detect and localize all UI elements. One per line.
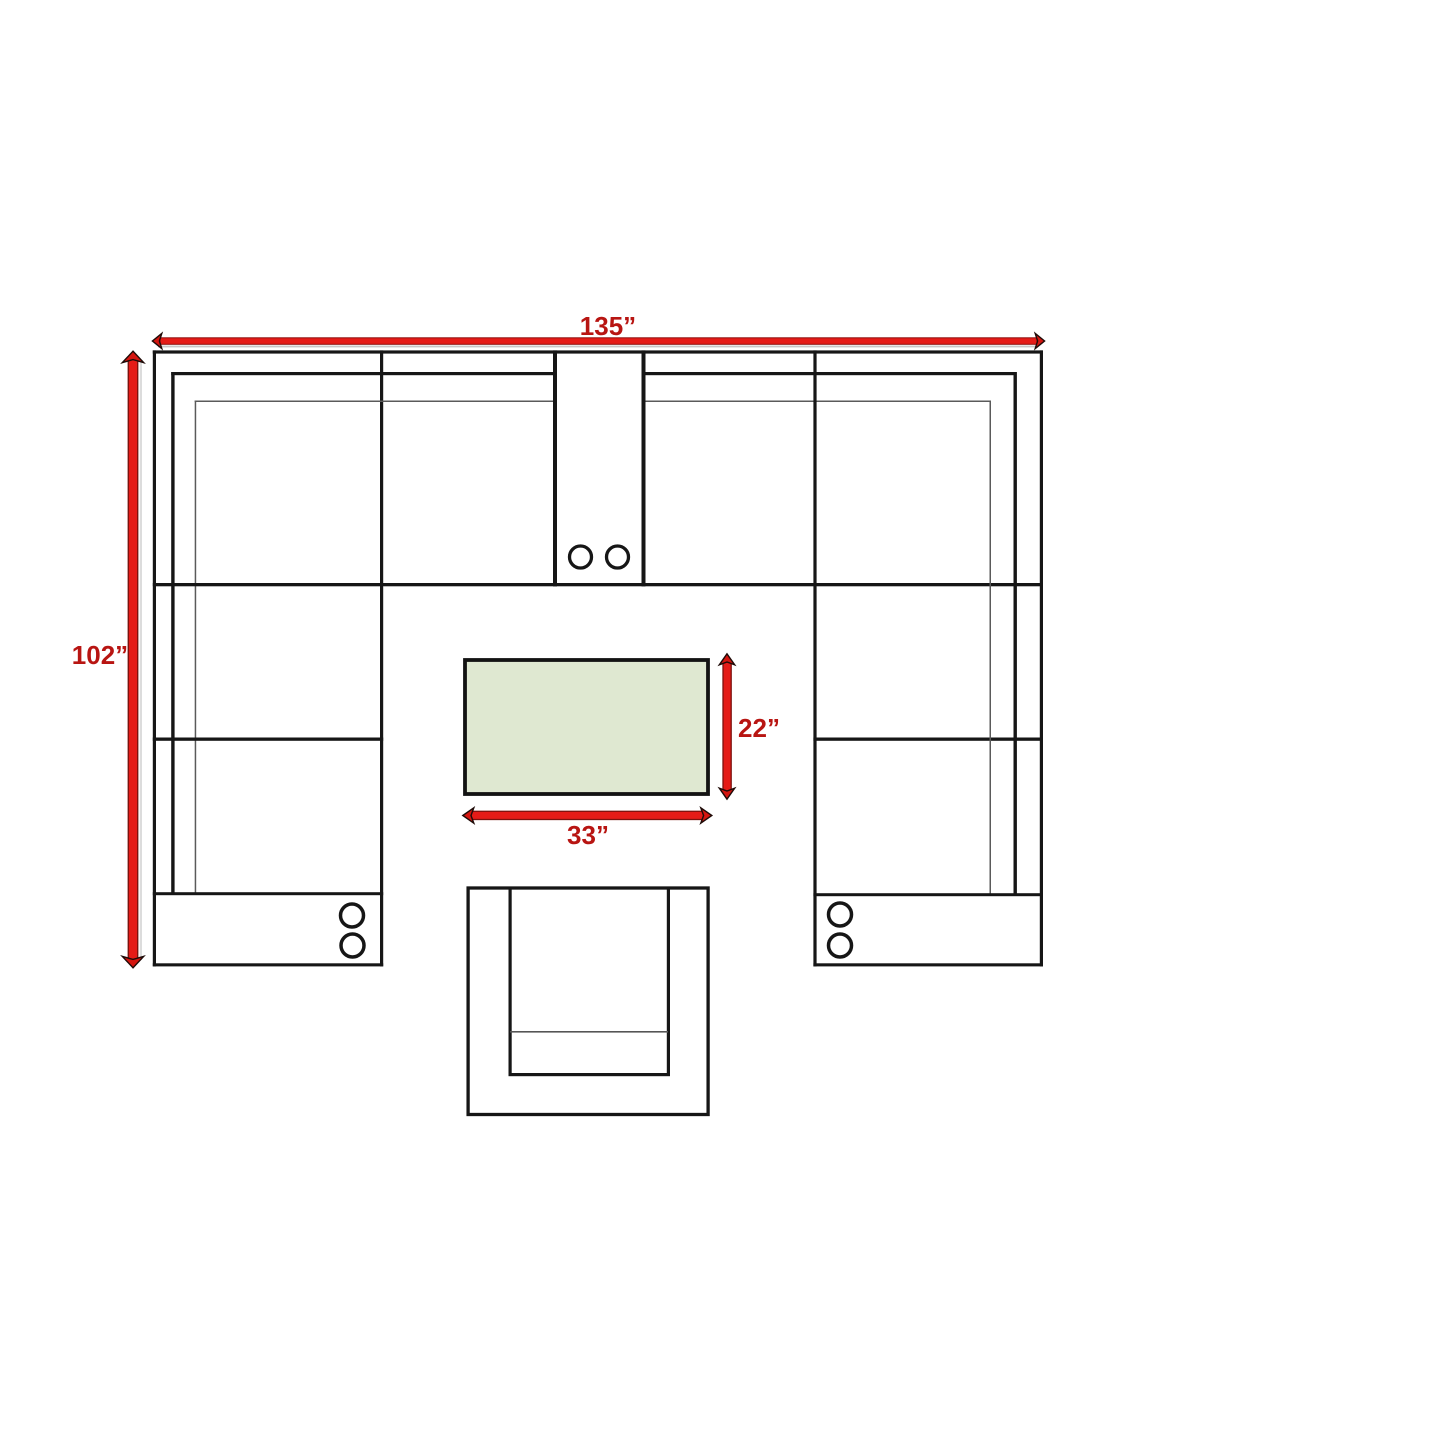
svg-text:33”: 33” — [567, 820, 609, 850]
svg-text:102”: 102” — [72, 640, 128, 670]
svg-text:22”: 22” — [738, 713, 780, 743]
svg-text:135”: 135” — [580, 311, 636, 341]
